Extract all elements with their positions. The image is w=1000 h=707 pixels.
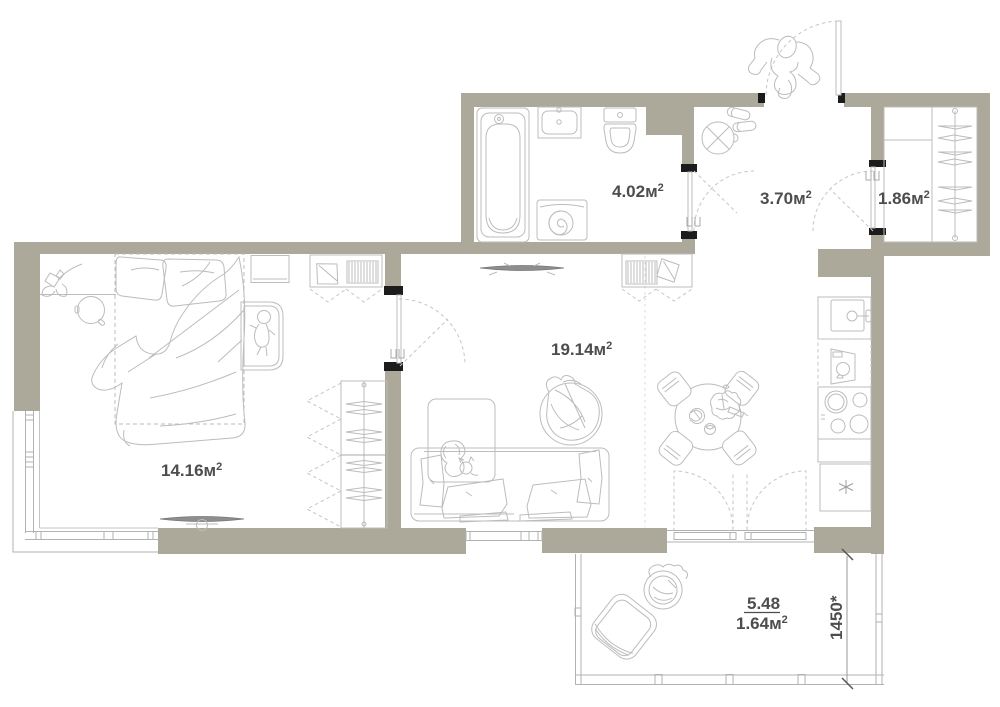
svg-text:1450*: 1450* xyxy=(827,595,846,640)
svg-text:3.70м2: 3.70м2 xyxy=(760,189,812,208)
svg-text:19.14м2: 19.14м2 xyxy=(551,340,612,359)
svg-text:5.48: 5.48 xyxy=(747,594,780,613)
svg-text:4.02м2: 4.02м2 xyxy=(612,182,664,201)
svg-text:1.64м2: 1.64м2 xyxy=(736,614,788,633)
svg-text:1.86м2: 1.86м2 xyxy=(878,189,930,208)
svg-text:14.16м2: 14.16м2 xyxy=(161,461,222,480)
